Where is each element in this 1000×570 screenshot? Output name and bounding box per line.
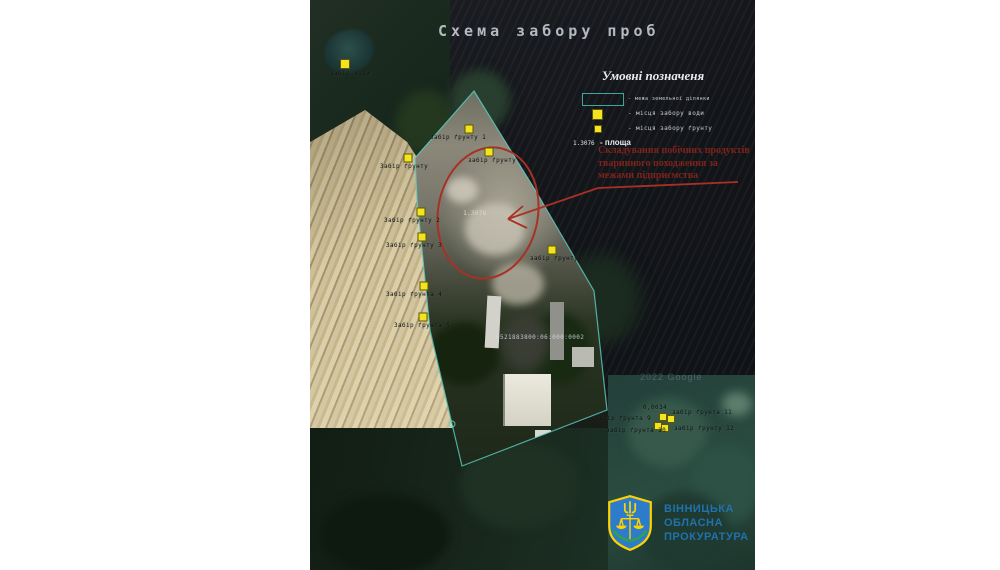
annotation-text: Складування побічних продуктів тваринног… <box>598 145 750 183</box>
marker-label: забір ґрунту 12 <box>674 425 734 432</box>
marker-label: забір ґрунта 11 <box>672 409 732 416</box>
marker-label: 0,0034 <box>643 404 667 411</box>
sampling-marker <box>667 415 675 423</box>
legend-row-water: - місця забору води <box>568 107 738 122</box>
marker-label: Забір ґрунту 3 <box>386 242 442 249</box>
prosecutor-logo: ВІННИЦЬКА ОБЛАСНА ПРОКУРАТУРА <box>604 494 749 552</box>
marker-label: Забір ґрунту 1 <box>430 134 486 141</box>
prosecutor-logo-text: ВІННИЦЬКА ОБЛАСНА ПРОКУРАТУРА <box>664 502 749 544</box>
page: Схема забору проб Умовні позначеня - меж… <box>0 0 1000 570</box>
soil-marker-symbol <box>594 125 602 133</box>
sampling-marker <box>340 59 350 69</box>
legend-row-soil: - місця забору ґрунту <box>568 122 738 137</box>
legend-row-boundary: - межа земельної ділянки <box>568 92 738 107</box>
legend-label: - межа земельної ділянки <box>628 96 710 102</box>
legend-label: - місця забору ґрунту <box>628 125 712 132</box>
sampling-marker <box>419 313 428 322</box>
legend-title: Умовні позначеня <box>568 68 738 84</box>
arrowhead <box>508 206 527 228</box>
marker-label: Забір ґрунта 4 <box>386 291 442 298</box>
legend: Умовні позначеня - межа земельної ділянк… <box>568 68 738 152</box>
legend-label: - місця забору води <box>628 110 704 117</box>
sampling-marker <box>418 233 427 242</box>
area-value: 1.3076 <box>573 140 595 147</box>
satellite-map: Схема забору проб Умовні позначеня - меж… <box>310 0 755 570</box>
logo-line: ОБЛАСНА <box>664 516 749 530</box>
marker-label: Забір ґрунту <box>380 163 428 170</box>
sampling-marker <box>417 208 426 217</box>
marker-label: забір ґрунту <box>468 157 516 164</box>
annotation-line: Складування побічних продуктів <box>598 145 750 158</box>
marker-label: забір ґрунту 8 <box>530 255 586 262</box>
logo-line: ВІННИЦЬКА <box>664 502 749 516</box>
sampling-marker <box>548 246 557 255</box>
imagery-watermark: 2022 Google <box>640 372 703 382</box>
coat-of-arms-shield-icon <box>604 494 656 552</box>
cadastral-number: 0521883800:06:000:0002 <box>496 334 584 341</box>
marker-label: Забір води <box>330 70 370 77</box>
water-marker-symbol <box>592 109 603 120</box>
map-title: Схема забору проб <box>438 22 660 40</box>
boundary-symbol <box>582 93 624 106</box>
marker-label: - забір ґрунта 9 <box>587 415 651 422</box>
sampling-marker <box>404 154 413 163</box>
annotation-line: межами підприємства <box>598 170 750 183</box>
annotation-line: тваринного походження за <box>598 158 750 171</box>
area-label: 1.3076 <box>463 209 486 217</box>
logo-line: ПРОКУРАТУРА <box>664 530 749 544</box>
marker-label: Забір ґрунта 5 <box>394 322 450 329</box>
sampling-marker <box>465 125 474 134</box>
sampling-marker <box>485 148 494 157</box>
marker-label: забір ґрунта 10 <box>606 427 666 434</box>
marker-label: Забір ґрунту 2 <box>384 217 440 224</box>
sampling-marker <box>420 282 429 291</box>
sampling-marker <box>659 413 667 421</box>
annotation-arrow <box>508 182 738 219</box>
